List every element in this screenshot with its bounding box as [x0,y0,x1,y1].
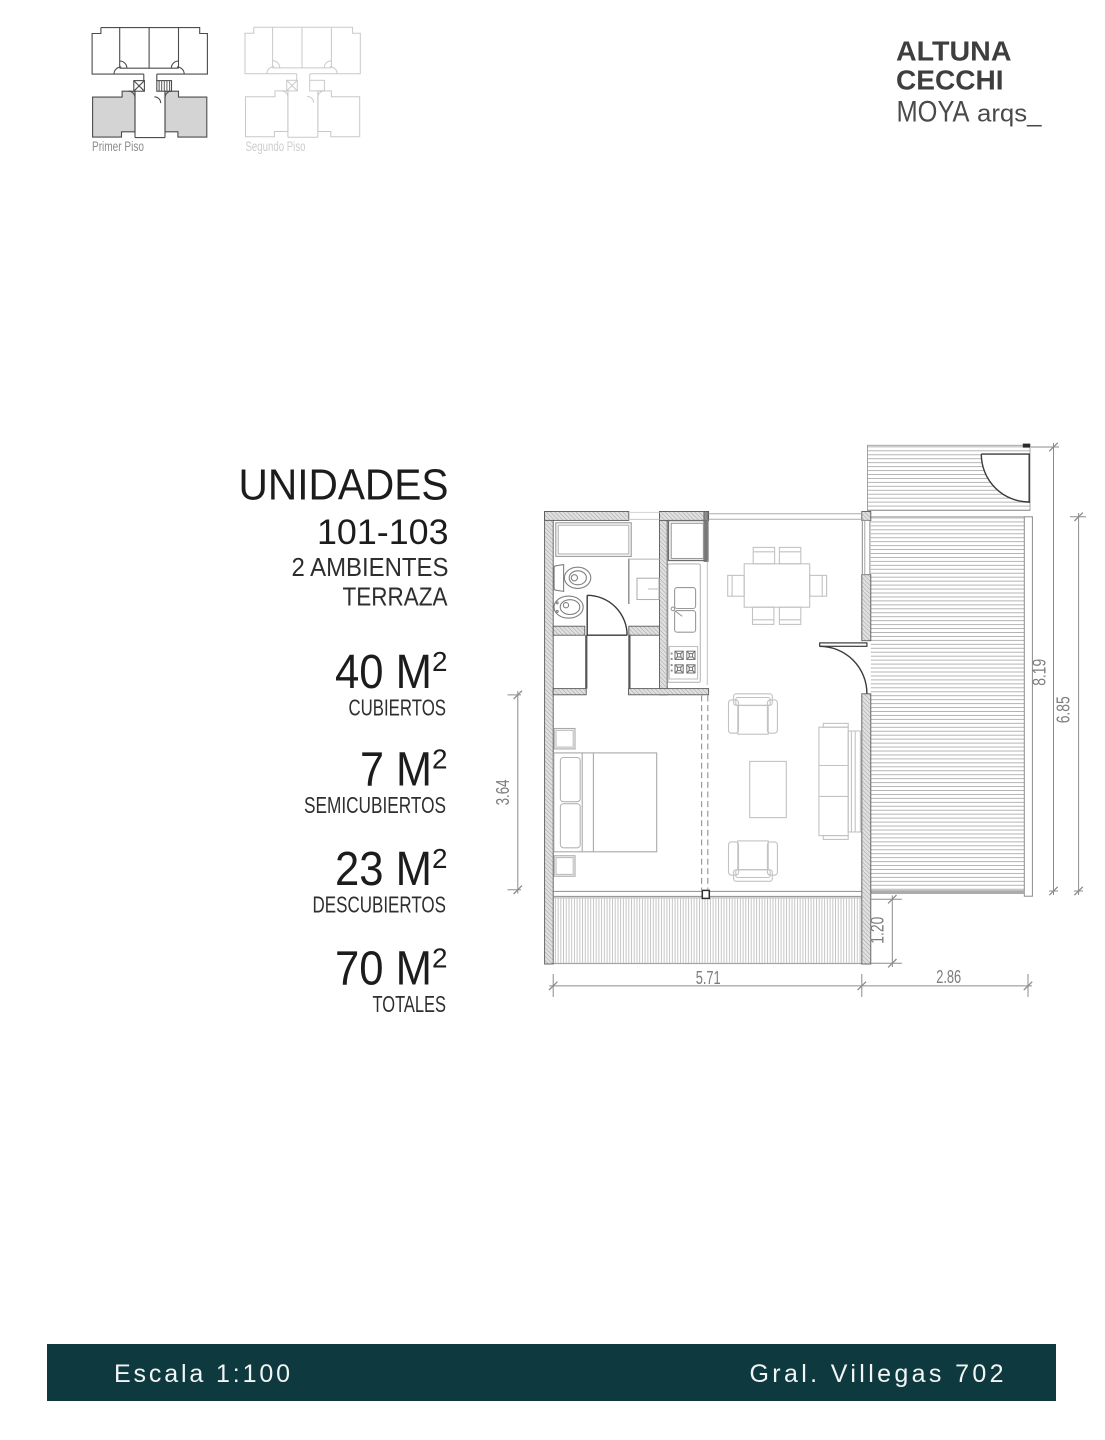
svg-text:6.85: 6.85 [1053,696,1074,723]
svg-text:Segundo Piso: Segundo Piso [246,139,306,154]
svg-text:Gral. Villegas 702: Gral. Villegas 702 [750,1360,1004,1388]
svg-text:CECCHI: CECCHI [896,65,1004,96]
svg-text:101-103: 101-103 [317,513,449,552]
svg-text:arqs_: arqs_ [977,101,1042,128]
svg-text:2 AMBIENTES: 2 AMBIENTES [292,552,449,582]
svg-text:TOTALES: TOTALES [373,991,447,1017]
svg-text:23 M2: 23 M2 [335,843,448,896]
svg-text:DESCUBIERTOS: DESCUBIERTOS [313,892,447,918]
svg-text:5.71: 5.71 [696,967,721,988]
svg-text:ALTUNA: ALTUNA [896,36,1012,67]
svg-text:70 M2: 70 M2 [335,943,448,996]
svg-text:Primer Piso: Primer Piso [92,139,144,154]
svg-text:1.20: 1.20 [867,917,888,944]
svg-text:MOYA: MOYA [897,96,970,129]
svg-text:TERRAZA: TERRAZA [343,582,449,612]
svg-text:SEMICUBIERTOS: SEMICUBIERTOS [304,792,446,818]
svg-text:CUBIERTOS: CUBIERTOS [349,695,447,721]
svg-text:40 M2: 40 M2 [335,646,448,699]
svg-text:Escala 1:100: Escala 1:100 [114,1360,290,1388]
svg-text:2.86: 2.86 [936,966,961,987]
svg-text:3.64: 3.64 [492,779,513,805]
svg-text:UNIDADES: UNIDADES [239,461,449,510]
svg-text:8.19: 8.19 [1029,659,1050,686]
